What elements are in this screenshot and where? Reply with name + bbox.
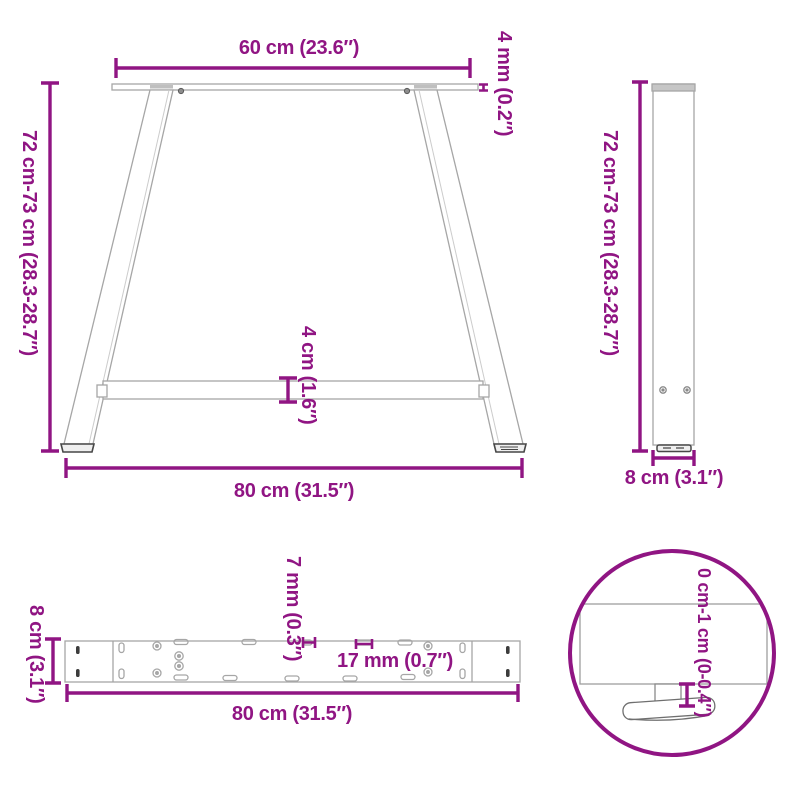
bar-depth-label: 8 cm (3.1″): [24, 605, 48, 704]
front-plate-thickness-label: 4 mm (0.2″): [492, 31, 516, 136]
front-crossbar-bracket-right: [479, 385, 489, 397]
bar-length-label: 80 cm (31.5″): [232, 702, 352, 726]
dim-side-height: [632, 82, 648, 451]
dim-bar-length: [67, 684, 518, 702]
front-feet: [61, 444, 526, 452]
front-height-label: 72 cm-73 cm (28.3-28.7″): [17, 130, 41, 356]
dim-front-height: [41, 83, 59, 451]
front-crossbar-height-label: 4 cm (1.6″): [296, 326, 320, 425]
dim-side-depth: [653, 450, 694, 466]
detail-adjustable-range-label: 0 cm-1 cm (0-0.4″): [692, 568, 716, 717]
side-leg-top-cap: [652, 84, 695, 91]
dim-front-plate-thickness: [479, 85, 488, 91]
diagram-canvas: [0, 0, 800, 800]
product-dimension-diagram: 60 cm (23.6″) 4 mm (0.2″) 72 cm-73 cm (2…: [0, 0, 800, 800]
bar-slot-large-label: 17 mm (0.7″): [337, 649, 453, 673]
dim-front-bottom-width: [66, 458, 522, 478]
side-depth-label: 8 cm (3.1″): [625, 466, 724, 490]
front-top-width-label: 60 cm (23.6″): [239, 36, 359, 60]
front-right-leg-cap: [414, 85, 437, 89]
front-left-leg-cap: [150, 85, 173, 89]
front-right-foot: [494, 444, 526, 452]
detail-leg-bottom: [580, 604, 767, 684]
dim-front-top-width: [116, 58, 470, 78]
front-bottom-width-label: 80 cm (31.5″): [234, 479, 354, 503]
detail-view: [570, 551, 774, 755]
bar-slot-small-label: 7 mm (0.3″): [281, 556, 305, 661]
front-view: [61, 84, 526, 452]
front-left-foot: [61, 444, 94, 452]
front-crossbar-bracket-left: [97, 385, 107, 397]
side-foot: [657, 445, 691, 452]
side-view: [652, 84, 695, 452]
side-height-label: 72 cm-73 cm (28.3-28.7″): [598, 130, 622, 356]
front-crossbar: [103, 381, 483, 399]
